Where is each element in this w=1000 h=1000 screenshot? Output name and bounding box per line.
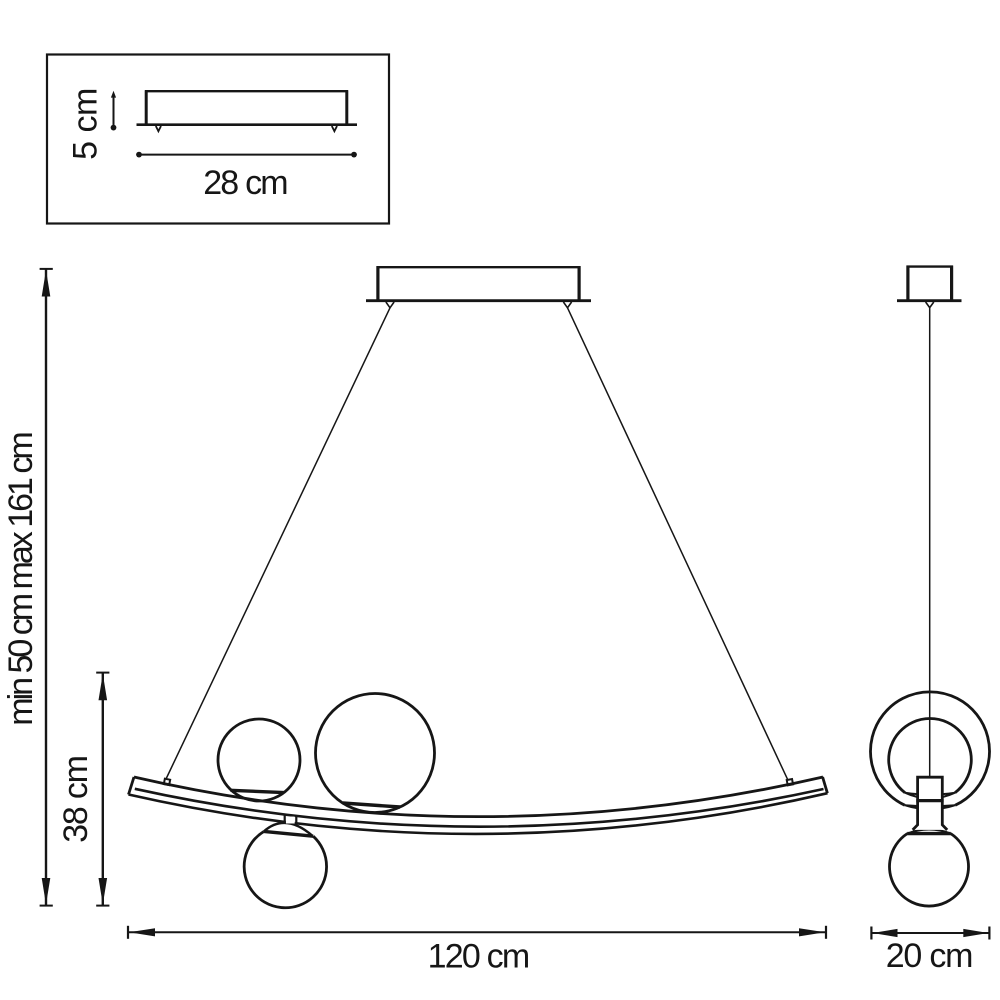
svg-text:5 cm: 5 cm: [67, 88, 105, 160]
svg-text:120 cm: 120 cm: [428, 938, 529, 976]
svg-text:min 50 cm max 161 cm: min 50 cm max 161 cm: [2, 433, 40, 726]
svg-text:20 cm: 20 cm: [886, 937, 973, 975]
svg-text:28 cm: 28 cm: [203, 164, 287, 202]
svg-text:38 cm: 38 cm: [57, 756, 95, 843]
